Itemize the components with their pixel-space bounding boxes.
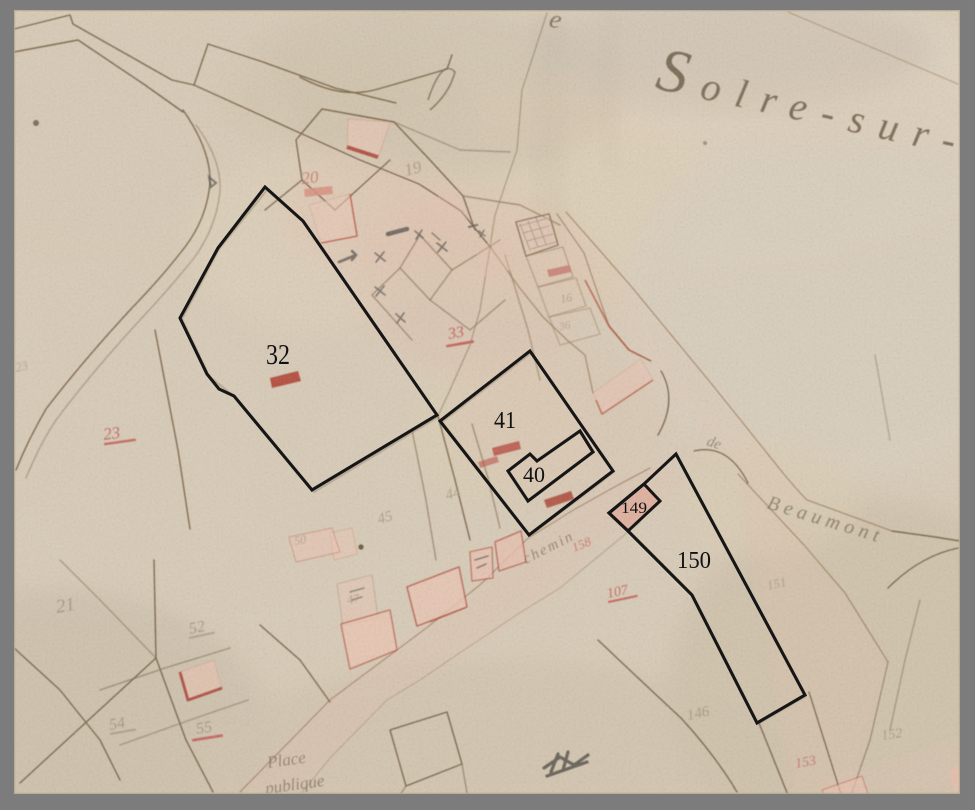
- svg-text:150: 150: [677, 548, 711, 574]
- svg-text:32: 32: [266, 340, 290, 371]
- svg-text:41: 41: [494, 408, 516, 434]
- svg-text:149: 149: [621, 500, 647, 517]
- svg-text:40: 40: [523, 462, 545, 487]
